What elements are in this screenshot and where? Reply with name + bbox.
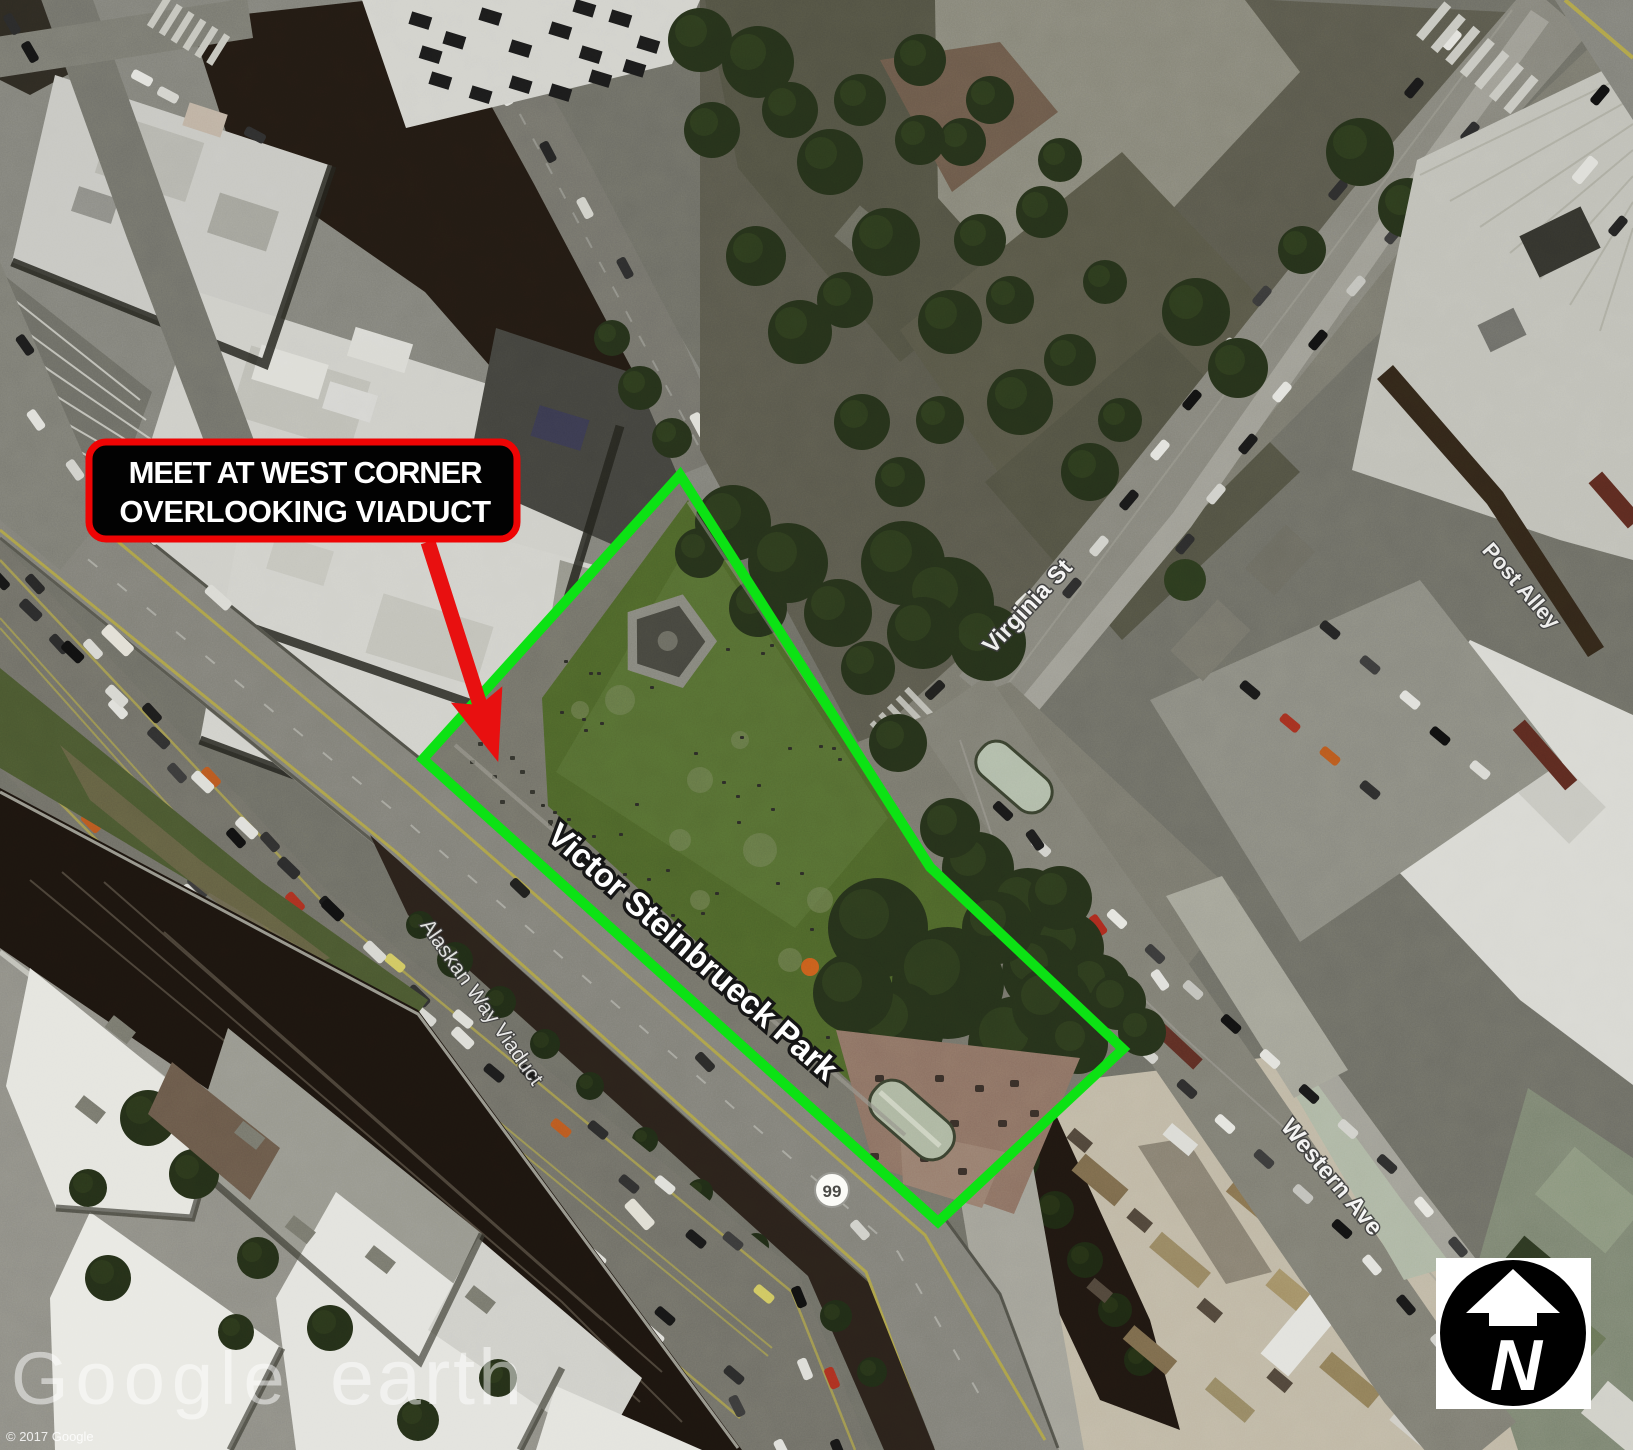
svg-text:MEET AT WEST CORNER: MEET AT WEST CORNER	[129, 455, 483, 490]
svg-text:99: 99	[823, 1182, 842, 1201]
svg-text:N: N	[1490, 1326, 1544, 1406]
svg-text:earth: earth	[330, 1332, 525, 1421]
svg-text:© 2017 Google: © 2017 Google	[6, 1429, 94, 1444]
svg-text:OVERLOOKING VIADUCT: OVERLOOKING VIADUCT	[119, 494, 491, 529]
svg-text:Google: Google	[11, 1337, 292, 1420]
